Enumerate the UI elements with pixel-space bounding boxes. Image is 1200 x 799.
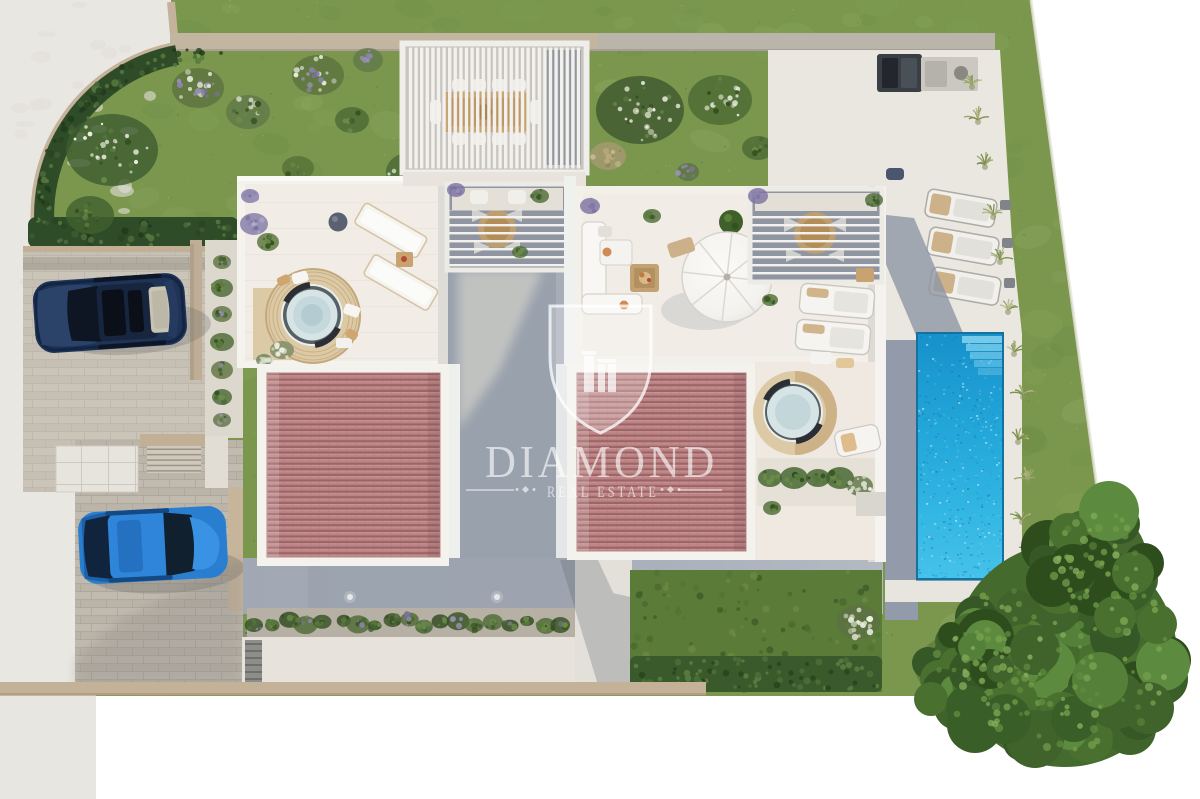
- svg-text:REAL ESTATE: REAL ESTATE: [547, 484, 659, 501]
- svg-text:DIAMOND: DIAMOND: [485, 436, 718, 487]
